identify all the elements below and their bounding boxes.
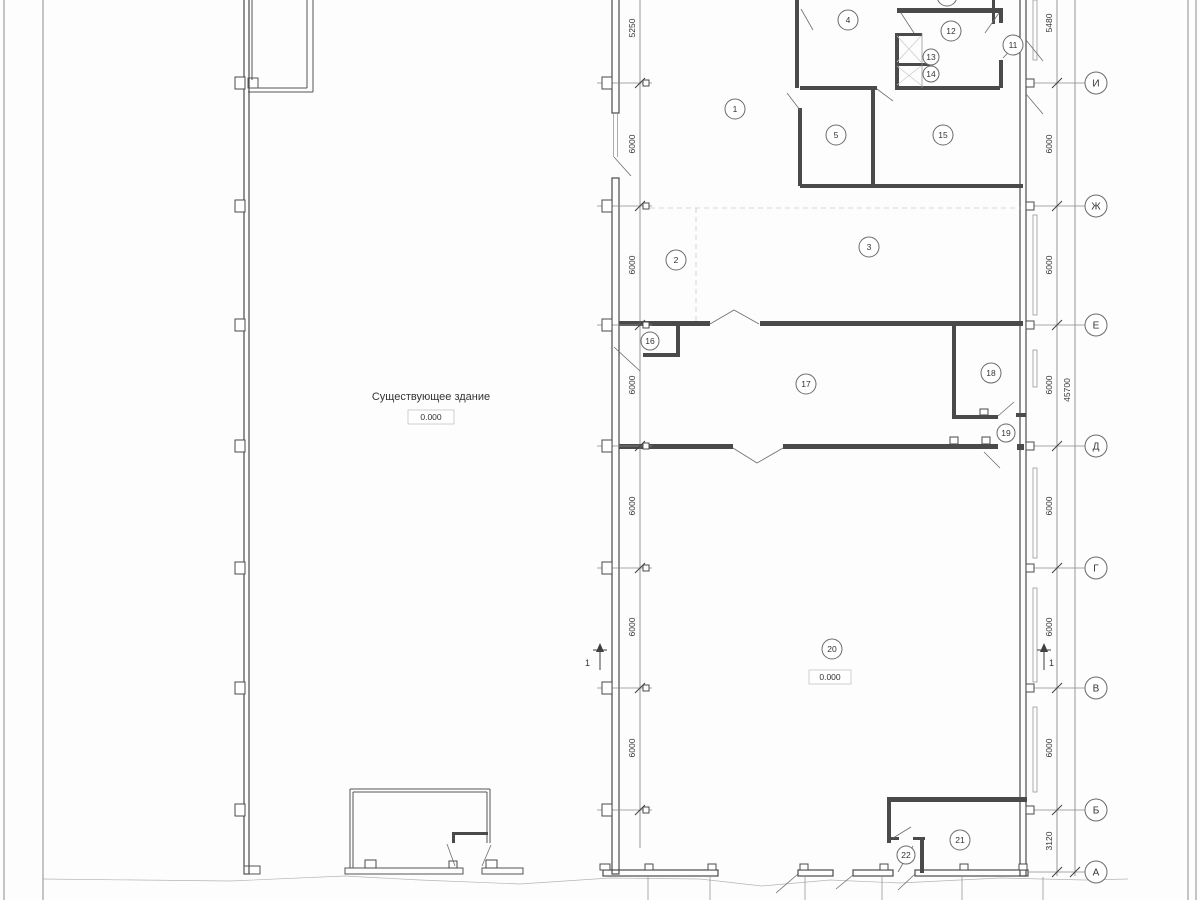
room-number: 5 (834, 130, 839, 140)
wall-column-marker (1026, 806, 1034, 814)
section-label-left: 1 (585, 658, 590, 668)
wall-column-marker (1026, 684, 1034, 692)
middle-wall (612, 0, 619, 874)
dimension-label: 6000 (1044, 496, 1054, 515)
wall-column-marker (235, 200, 245, 212)
room-number: 19 (1001, 428, 1011, 438)
existing-building-label: Существующее здание (372, 391, 490, 403)
room-number: 1 (733, 104, 738, 114)
axis-label: Г (1093, 564, 1099, 575)
section-mark-left: 1 (585, 643, 607, 670)
elevation-existing: 0.000 (420, 412, 442, 422)
wall-column-marker (235, 77, 245, 89)
dimension-label: 3120 (1044, 831, 1054, 850)
axis-label: А (1093, 868, 1100, 879)
elevation-new: 0.000 (819, 672, 841, 682)
wall-column-marker (1026, 79, 1034, 87)
room-tags: 12345111213141516171819202122 (641, 0, 1023, 864)
dimension-label: 6000 (1044, 738, 1054, 757)
wall-column-marker (602, 319, 612, 331)
dimension-label: 45700 (1062, 378, 1072, 402)
room-number: 12 (946, 26, 956, 36)
wall-column-marker (602, 200, 612, 212)
dimension-label: 6000 (627, 375, 637, 394)
wall-column-marker (1026, 564, 1034, 572)
axis-label: Ж (1091, 202, 1101, 213)
dimension-label: 6000 (627, 738, 637, 757)
grid-column-marker (643, 565, 649, 571)
porch (345, 789, 523, 874)
wall-column-marker (602, 77, 612, 89)
wall-column-marker (1026, 442, 1034, 450)
dimension-label: 6000 (627, 496, 637, 515)
ground-line (42, 876, 1128, 886)
extension-outer-walls (600, 0, 1037, 876)
axis-label: Д (1093, 442, 1100, 453)
axis-label: Е (1093, 321, 1100, 332)
room-number: 22 (901, 850, 911, 860)
wall-column-marker (235, 319, 245, 331)
existing-building-walls (244, 0, 313, 874)
floor-plan-canvas: 1 1 Существующее здание 0.000 0.000 ИЖЕД… (0, 0, 1200, 900)
grid-column-marker (643, 685, 649, 691)
grid-column-marker (643, 80, 649, 86)
wall-column-marker (602, 804, 612, 816)
grid-column-marker (643, 443, 649, 449)
room-number: 18 (986, 368, 996, 378)
extension-interior-walls (619, 0, 1027, 873)
wall-column-marker (235, 804, 245, 816)
room-number: 2 (674, 255, 679, 265)
dimension-label: 6000 (1044, 375, 1054, 394)
drawing-sheet: 1 1 Существующее здание 0.000 0.000 ИЖЕД… (0, 0, 1200, 900)
room-number: 21 (955, 835, 965, 845)
wall-column-marker (235, 682, 245, 694)
axis-label: В (1093, 684, 1100, 695)
wall-column-marker (235, 440, 245, 452)
dimension-label: 6000 (627, 134, 637, 153)
section-label-right: 1 (1049, 658, 1054, 668)
room-number: 20 (827, 644, 837, 654)
wall-column-marker (1026, 202, 1034, 210)
room-number: 14 (926, 69, 936, 79)
dimension-label: 6000 (627, 255, 637, 274)
wall-column-marker (602, 562, 612, 574)
wall-column-marker (235, 562, 245, 574)
grid-column-marker (643, 322, 649, 328)
dimension-label: 5250 (627, 18, 637, 37)
room-number: 13 (926, 52, 936, 62)
room-number: 3 (867, 242, 872, 252)
dimension-label: 6000 (1044, 255, 1054, 274)
room-number: 15 (938, 130, 948, 140)
wall-column-marker (602, 440, 612, 452)
room-number: 16 (645, 336, 655, 346)
grid-column-marker (643, 807, 649, 813)
grid-column-marker (643, 203, 649, 209)
axis-label: И (1092, 79, 1099, 90)
dimension-label: 6000 (1044, 617, 1054, 636)
dimension-label: 6000 (1044, 134, 1054, 153)
zone-dashed-lines (650, 208, 1020, 322)
section-mark-right: 1 (1037, 643, 1054, 670)
wall-column-marker (1026, 321, 1034, 329)
dimension-label: 5480 (1044, 13, 1054, 32)
axis-label: Б (1093, 806, 1100, 817)
room-number: 11 (1009, 40, 1018, 50)
room-number: 4 (846, 15, 851, 25)
axis-grid: ИЖЕДГВБА (235, 72, 1107, 883)
dimension-label: 6000 (627, 617, 637, 636)
room-number: 17 (801, 379, 811, 389)
room-tag (937, 0, 957, 6)
wall-column-marker (602, 682, 612, 694)
